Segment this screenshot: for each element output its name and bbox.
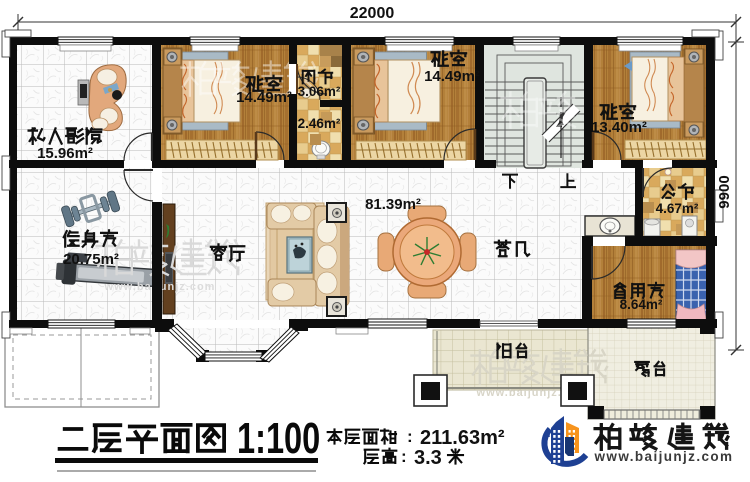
svg-text:15.96m²: 15.96m² (37, 145, 93, 162)
svg-text:14.49m²: 14.49m² (424, 68, 480, 85)
svg-text:4.67m²: 4.67m² (656, 201, 699, 216)
svg-text:1:100: 1:100 (237, 414, 320, 463)
svg-text::: : (401, 447, 407, 466)
svg-text:211.63m²: 211.63m² (420, 427, 505, 449)
svg-text:13.40m²: 13.40m² (591, 119, 647, 136)
svg-text:9900: 9900 (716, 175, 733, 208)
svg-text:20.75m²: 20.75m² (63, 251, 119, 268)
svg-text::: : (407, 427, 413, 446)
svg-text:81.39m²: 81.39m² (365, 196, 421, 213)
svg-text:www.baijunjz.com: www.baijunjz.com (594, 449, 734, 464)
svg-text:3.06m²: 3.06m² (298, 84, 341, 99)
svg-text:22000: 22000 (350, 5, 395, 22)
svg-text:8.64m²: 8.64m² (620, 297, 663, 312)
svg-text:14.49m²: 14.49m² (236, 89, 292, 106)
svg-text:3.3: 3.3 (414, 447, 442, 469)
svg-text:2.46m²: 2.46m² (298, 116, 341, 131)
